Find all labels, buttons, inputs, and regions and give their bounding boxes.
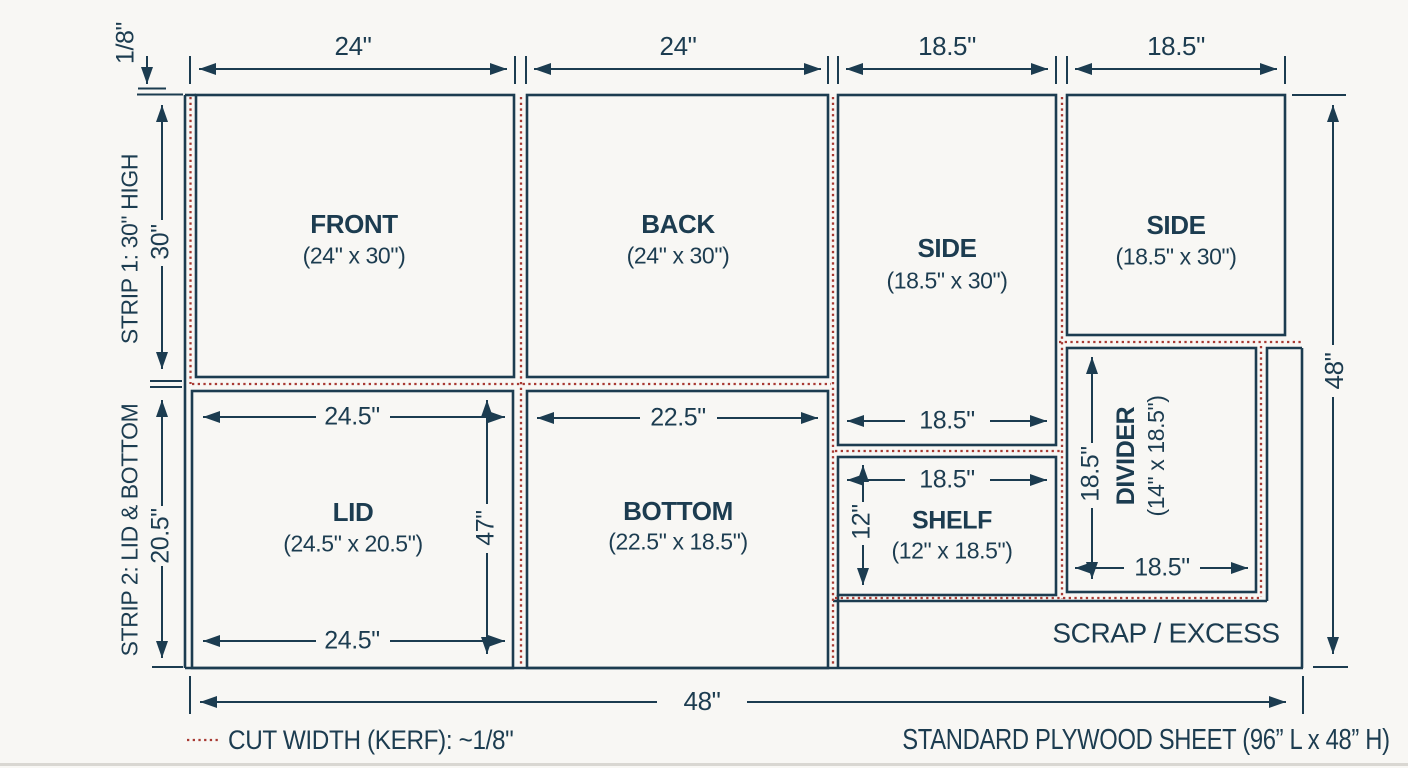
dim-label-side1-inner-width: 18.5"	[919, 405, 975, 436]
dim-label-bottom-width: 22.5"	[650, 402, 706, 433]
side1-panel-size: (18.5" x 30")	[886, 267, 1007, 296]
legend-kerf-note: CUT WIDTH (KERF): ~1/8"	[228, 724, 513, 758]
back-panel-size: (24" x 30")	[627, 242, 730, 271]
dim-label-shelf-height: 12"	[846, 504, 877, 539]
back-panel-title: BACK	[641, 208, 715, 241]
kerf-callout-label: 1/8"	[110, 22, 141, 64]
panel-outlines	[192, 95, 1285, 668]
bottom-panel-size: (22.5" x 18.5")	[608, 528, 747, 557]
strip-boundary-ticks	[150, 381, 182, 387]
strip1-label: STRIP 1: 30" HIGH	[116, 154, 145, 344]
front-panel-title: FRONT	[310, 208, 398, 241]
dim-label-sheet-height: 48"	[1318, 353, 1351, 390]
side1-panel-title: SIDE	[917, 232, 976, 265]
divider-panel-title: DIVIDER	[1111, 395, 1142, 516]
legend-sheet-note: STANDARD PLYWOOD SHEET (96” L x 48” H)	[902, 722, 1389, 758]
lid-panel-size: (24.5" x 20.5")	[283, 530, 422, 559]
front-panel-size: (24" x 30")	[303, 242, 406, 271]
bottom-panel-title: BOTTOM	[623, 495, 733, 528]
dim-label-lid-bottom-width: 24.5"	[324, 625, 380, 656]
lid-panel-title: LID	[333, 496, 374, 529]
kerf-callout-ticks	[137, 89, 183, 95]
shelf-panel-title: SHELF	[912, 505, 992, 536]
divider-panel-label: DIVIDER (14" x 18.5")	[1111, 395, 1171, 516]
strip2-label: STRIP 2: LID & BOTTOM	[116, 404, 145, 657]
side2-panel-title: SIDE	[1146, 209, 1205, 242]
cut-plan-drawing	[0, 0, 1408, 768]
bottom-dim-ticks	[190, 676, 1303, 714]
dim-label-sheet-width: 48"	[684, 685, 721, 718]
dim-label-strip2-height: 20.5"	[145, 508, 176, 564]
edge-strip-piece	[1267, 348, 1302, 601]
scrap-area-label: SCRAP / EXCESS	[1052, 616, 1279, 651]
dim-label-front-width: 24"	[335, 30, 372, 63]
divider-panel-size: (14" x 18.5")	[1142, 395, 1171, 516]
dim-label-side2-width: 18.5"	[1147, 30, 1205, 63]
dim-label-lid-top-width: 24.5"	[324, 401, 380, 432]
image-bottom-edge-artifact	[0, 763, 1408, 766]
side2-panel-size: (18.5" x 30")	[1115, 243, 1236, 272]
dim-label-back-width: 24"	[660, 30, 697, 63]
dim-label-shelf-width: 18.5"	[919, 464, 975, 495]
dim-label-side1-width: 18.5"	[918, 30, 976, 63]
shelf-panel-size: (12" x 18.5")	[891, 537, 1012, 566]
dim-label-47: 47"	[470, 510, 501, 545]
dimension-lines	[147, 56, 1333, 702]
dim-label-strip1-height: 30"	[145, 224, 176, 259]
dim-label-divider-height: 18.5"	[1075, 446, 1106, 502]
plywood-cut-diagram: 24" 24" 18.5" 18.5" 1/8" STRIP 1: 30" HI…	[0, 0, 1408, 768]
dim-label-divider-width: 18.5"	[1134, 552, 1190, 583]
